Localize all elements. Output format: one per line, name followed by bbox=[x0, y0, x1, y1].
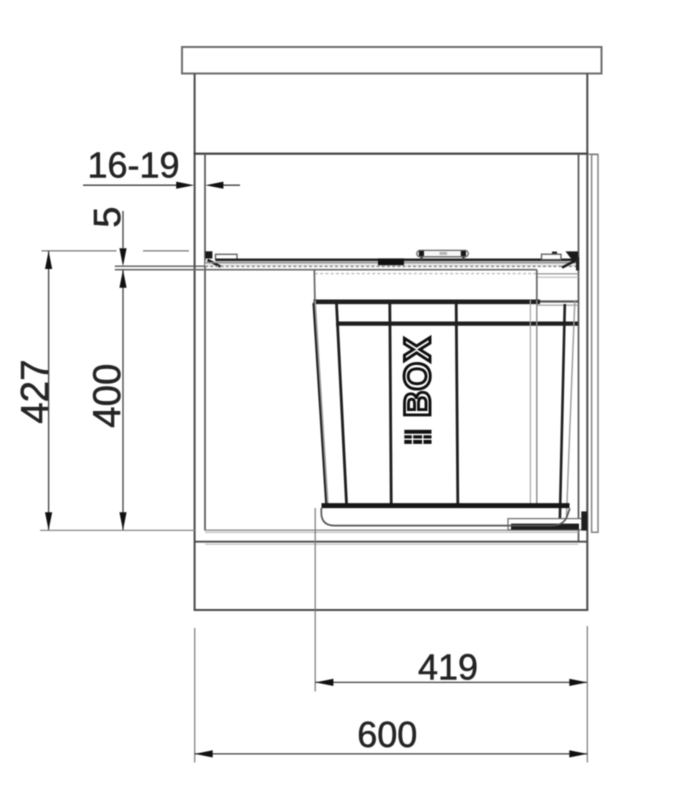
svg-text:16-19: 16-19 bbox=[87, 145, 179, 186]
svg-text:600: 600 bbox=[357, 714, 417, 755]
svg-text:427: 427 bbox=[14, 359, 57, 423]
svg-text:BOX: BOX bbox=[397, 337, 438, 418]
svg-text:419: 419 bbox=[418, 646, 478, 687]
